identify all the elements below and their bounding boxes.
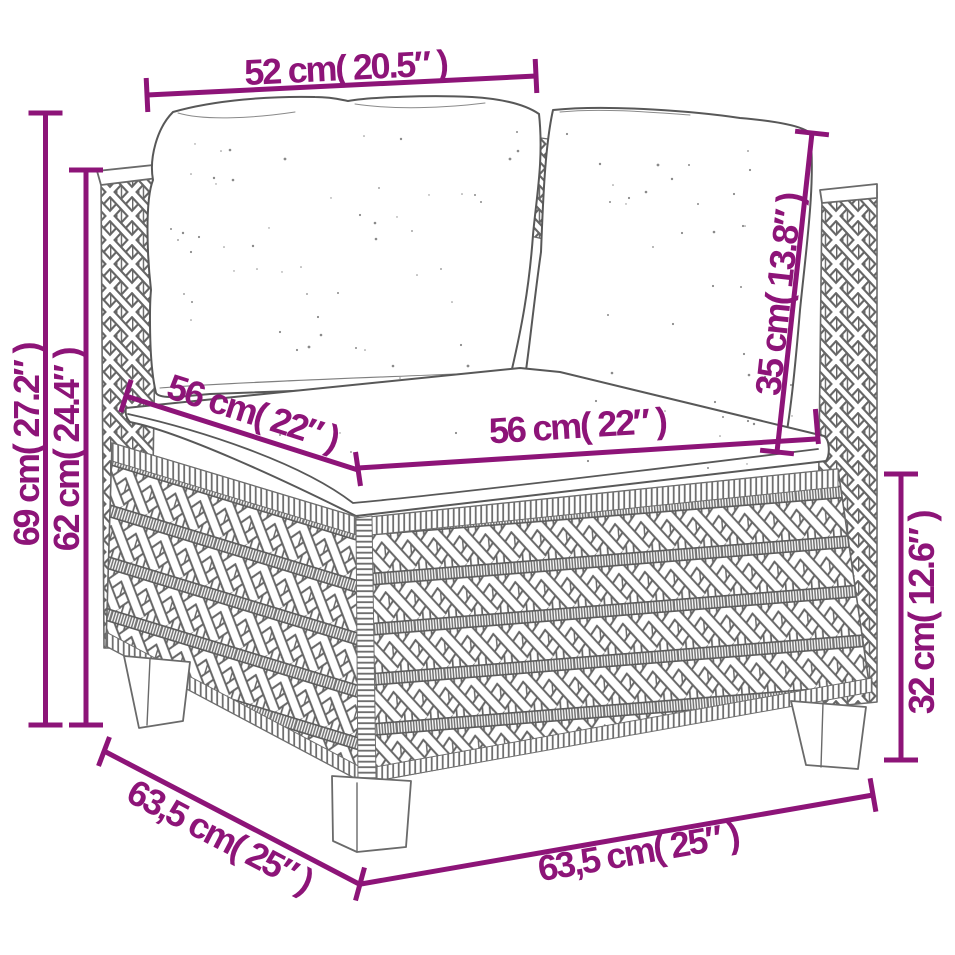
svg-text:62 cm( 24.4″ ): 62 cm( 24.4″ ): [46, 348, 87, 552]
svg-text:69 cm( 27.2″ ): 69 cm( 27.2″ ): [6, 343, 47, 547]
svg-text:32 cm( 12.6″ ): 32 cm( 12.6″ ): [901, 511, 942, 715]
